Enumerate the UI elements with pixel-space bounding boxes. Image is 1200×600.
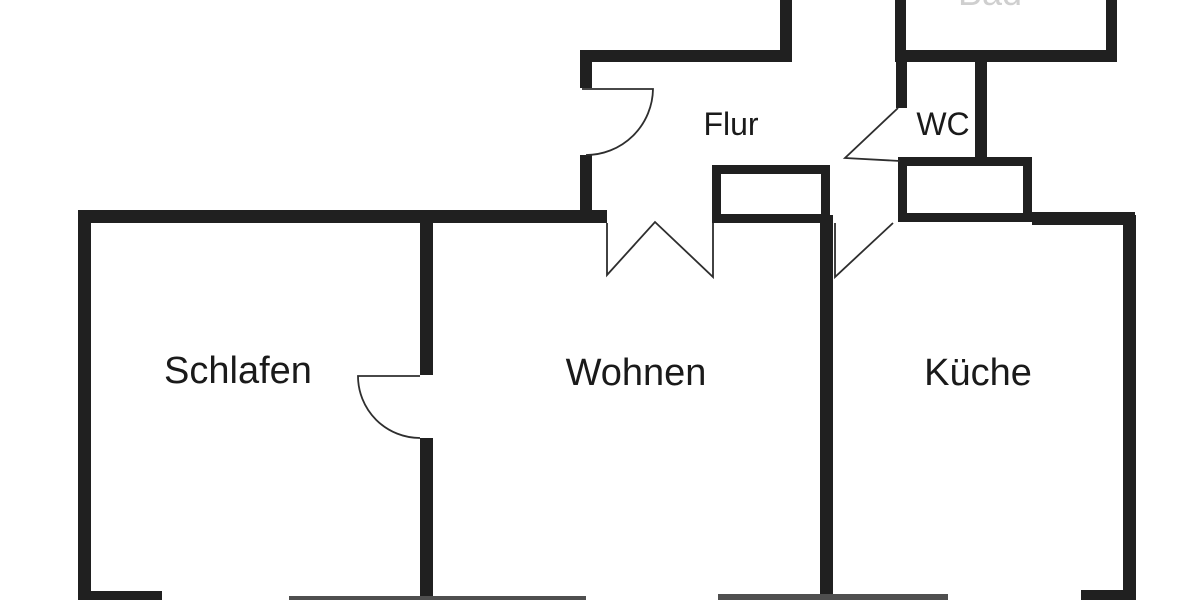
wall-bottom-schlafen-wohnen	[289, 596, 586, 600]
wall-divider-kueche	[820, 215, 833, 600]
room-label-wohnen: Wohnen	[566, 352, 707, 394]
room-label-bad-cutoff: Bad	[958, 0, 1022, 13]
wall-bad-right	[1106, 0, 1117, 56]
wall-block-flur-south	[717, 170, 826, 219]
wall-top-kueche	[1032, 212, 1135, 225]
floor-plan-canvas: Schlafen Wohnen Küche Flur WC Bad	[0, 0, 1200, 600]
wall-divider-schlafen-lower	[420, 438, 433, 600]
room-label-kueche: Küche	[924, 352, 1032, 394]
wall-bad-bottom	[895, 50, 1117, 62]
door-kueche	[835, 223, 893, 277]
wall-entry-right	[780, 0, 792, 62]
wall-flur-left-upper	[580, 50, 592, 88]
walls	[78, 0, 1136, 600]
door-wc	[845, 108, 900, 161]
door-flur-entry	[582, 89, 653, 155]
room-label-flur: Flur	[703, 106, 758, 142]
wall-flur-top	[580, 50, 792, 62]
floor-plan: Schlafen Wohnen Küche Flur WC Bad	[0, 0, 1200, 600]
wall-bottom-wohnen-kueche	[718, 594, 948, 600]
wall-bottom-kueche-right	[1081, 590, 1136, 600]
wall-divider-schlafen-upper	[420, 210, 433, 375]
room-label-schlafen: Schlafen	[164, 350, 312, 392]
wall-top-main	[78, 210, 607, 223]
opening-wohnen	[607, 222, 713, 277]
wall-outer-left	[78, 210, 91, 600]
wall-wc-right	[975, 62, 987, 170]
wall-flur-left-lower	[580, 155, 592, 215]
wall-outer-right	[1123, 215, 1136, 600]
wall-wc-left	[896, 62, 907, 108]
wall-block-wc-south	[903, 162, 1028, 218]
door-schlafen	[358, 376, 420, 438]
wall-bottom-schlafen-left	[78, 591, 162, 600]
room-label-wc: WC	[916, 106, 969, 142]
